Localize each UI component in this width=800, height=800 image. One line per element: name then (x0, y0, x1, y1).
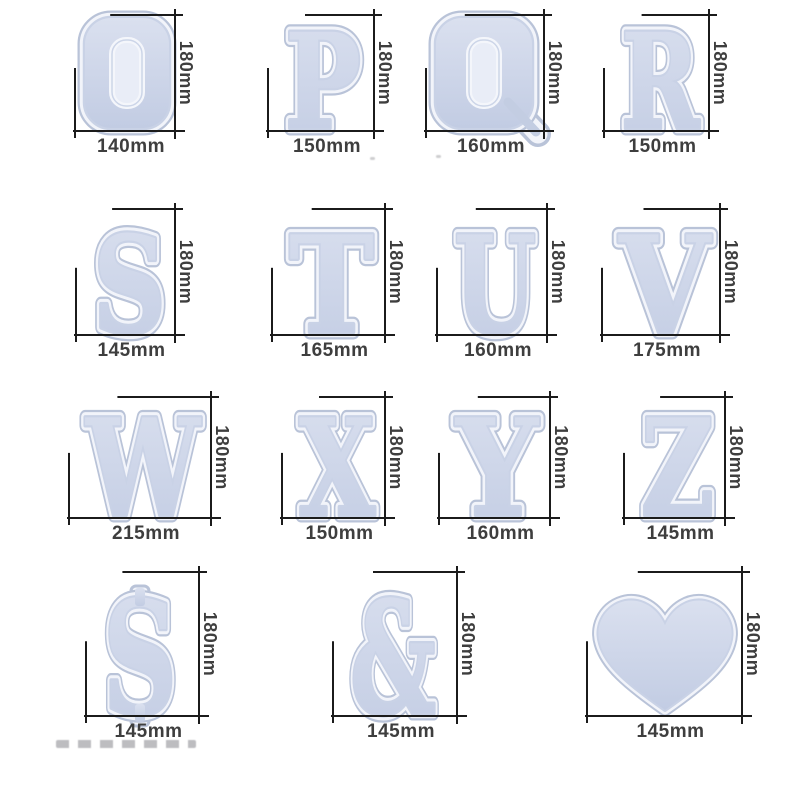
dollar-stub-cavity (135, 588, 145, 606)
width-label: 215mm (112, 523, 180, 544)
mold-item-r: RRRR180mm150mm (588, 8, 767, 163)
height-label: 180mm (386, 240, 406, 305)
mold-item-p: PPPP180mm150mm (252, 8, 432, 163)
mold-item-z: ZZZZ180mm145mm (588, 390, 783, 550)
mold-figure-s: SSSS180mm145mm (42, 202, 233, 362)
width-label: 150mm (293, 136, 361, 157)
mold-figure-x: XXXX180mm150mm (268, 390, 443, 545)
mold-item-ampersand: &&&&180mm145mm (302, 565, 515, 748)
mold-size-chart: 180mm140mmPPPP180mm150mm180mm160mmRRRR18… (0, 0, 800, 800)
width-label: 145mm (637, 721, 705, 742)
width-label: 150mm (629, 136, 697, 157)
height-label: 180mm (212, 425, 232, 490)
width-label: 145mm (647, 523, 715, 544)
letter-glyph: Z (641, 390, 714, 545)
height-label: 180mm (386, 425, 406, 490)
height-label: 180mm (176, 41, 196, 106)
mold-figure-p: PPPP180mm150mm (252, 8, 432, 158)
mold-item-dollar: SSSS180mm145mm (52, 565, 257, 748)
width-label: 145mm (98, 340, 166, 361)
letter-glyph: X (299, 390, 375, 545)
mold-item-v: VVVV180mm175mm (592, 202, 778, 367)
mold-figure-heart: 180mm145mm (558, 565, 800, 743)
width-label: 160mm (464, 340, 532, 361)
mold-item-w: WWWW180mm215mm (52, 390, 269, 550)
mold-item-heart: 180mm145mm (558, 565, 800, 748)
width-label: 145mm (115, 721, 183, 742)
width-label: 160mm (467, 523, 535, 544)
height-label: 180mm (375, 41, 395, 106)
mold-figure-r: RRRR180mm150mm (588, 8, 767, 158)
width-label: 150mm (306, 523, 374, 544)
mold-figure-ampersand: &&&&180mm145mm (302, 565, 515, 743)
letter-counter (112, 40, 142, 106)
letter-glyph: W (84, 390, 201, 545)
letter-glyph: U (454, 206, 536, 362)
mold-figure-o: 180mm140mm (55, 8, 233, 158)
width-label: 160mm (457, 136, 525, 157)
height-label: 180mm (545, 41, 565, 106)
width-label: 165mm (301, 340, 369, 361)
letter-glyph: S (93, 206, 166, 362)
width-label: 175mm (633, 340, 701, 361)
height-label: 180mm (551, 425, 571, 490)
mold-item-s: SSSS180mm145mm (42, 202, 233, 367)
width-label: 145mm (367, 721, 435, 742)
height-label: 180mm (200, 612, 220, 677)
height-label: 180mm (458, 612, 478, 677)
height-label: 180mm (710, 41, 730, 106)
mold-item-u: UUUU180mm160mm (428, 202, 605, 367)
mold-figure-v: VVVV180mm175mm (592, 202, 778, 362)
mold-item-x: XXXX180mm150mm (268, 390, 443, 550)
height-label: 180mm (548, 240, 568, 305)
mold-figure-q: 180mm160mm (420, 8, 602, 158)
mold-item-t: TTTT180mm165mm (248, 202, 443, 367)
height-label: 180mm (721, 240, 741, 305)
mold-item-o: 180mm140mm (55, 8, 233, 163)
letter-counter (469, 40, 499, 106)
dollar-stub-cavity (135, 704, 145, 722)
height-label: 180mm (176, 240, 196, 305)
mold-item-y: YYYY180mm160mm (428, 390, 608, 550)
width-label: 140mm (97, 136, 165, 157)
mold-figure-dollar: SSSS180mm145mm (52, 565, 257, 743)
letter-glyph: V (618, 206, 712, 362)
mold-figure-u: UUUU180mm160mm (428, 202, 605, 362)
height-label: 180mm (743, 612, 763, 677)
letter-glyph: Y (454, 390, 539, 545)
mold-figure-t: TTTT180mm165mm (248, 202, 443, 362)
mold-item-q: 180mm160mm (420, 8, 602, 163)
letter-glyph: T (289, 206, 374, 362)
mold-figure-z: ZZZZ180mm145mm (588, 390, 783, 545)
mold-figure-w: WWWW180mm215mm (52, 390, 269, 545)
height-label: 180mm (726, 425, 746, 490)
mold-figure-y: YYYY180mm160mm (428, 390, 608, 545)
